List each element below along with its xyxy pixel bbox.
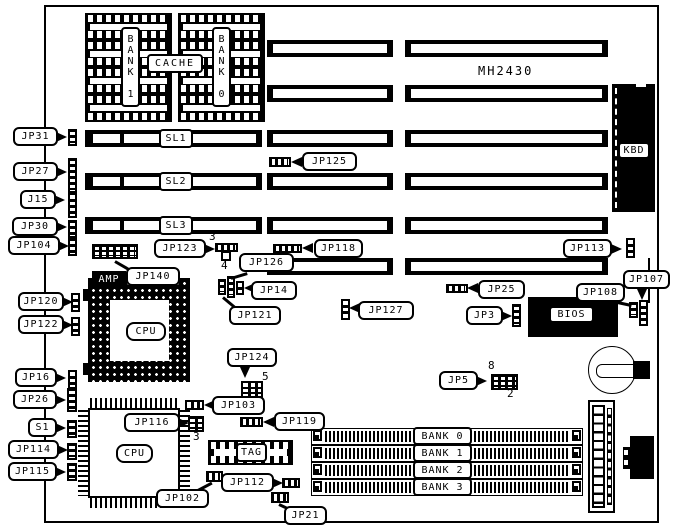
pin-number: 3 xyxy=(209,230,216,243)
cache-bank1-label: BANK 1 xyxy=(121,27,140,107)
jumper-jp103 xyxy=(185,400,204,410)
pointer-jp25 xyxy=(467,283,478,293)
board-model: MH2430 xyxy=(478,64,533,78)
pin-number: 8 xyxy=(488,359,495,372)
callout-jp108: JP108 xyxy=(576,283,625,302)
pointer-jp119 xyxy=(263,417,274,427)
pointer-jp125 xyxy=(291,157,302,167)
pointer-jp118 xyxy=(302,243,313,253)
callout-jp113: JP113 xyxy=(563,239,612,258)
isa-slot xyxy=(267,85,393,102)
jumper-jp140 xyxy=(92,244,138,259)
jumper-jp118 xyxy=(273,244,302,253)
din-port xyxy=(630,436,654,479)
isa-slot xyxy=(405,258,608,275)
callout-jp121: JP121 xyxy=(229,306,281,325)
callout-jp112: JP112 xyxy=(221,473,274,492)
isa-slot xyxy=(405,173,608,190)
jumper-jp30 xyxy=(68,220,77,238)
bios-label: BIOS xyxy=(549,306,594,323)
pointer-jp124 xyxy=(240,367,250,378)
jumper-jp114 xyxy=(67,443,77,460)
callout-jp114: JP114 xyxy=(8,440,59,459)
callout-jp104: JP104 xyxy=(8,236,60,255)
callout-jp120: JP120 xyxy=(18,292,64,311)
callout-jp127: JP127 xyxy=(358,301,414,320)
jumper-jp26 xyxy=(67,388,77,412)
pin-number: 3 xyxy=(193,430,200,443)
socket-tab xyxy=(83,363,88,375)
callout-jp30: JP30 xyxy=(12,217,58,236)
pin-number: 2 xyxy=(507,387,514,400)
pin-number: 4 xyxy=(221,259,228,272)
amp-label: AMP xyxy=(92,271,126,287)
jumper-jp5 xyxy=(491,374,518,390)
jumper-jp16 xyxy=(68,370,77,389)
jumper-jp14-strip xyxy=(236,281,244,295)
slot-label-sl3: SL3 xyxy=(159,216,193,235)
callout-jp102: JP102 xyxy=(156,489,209,508)
callout-jp31: JP31 xyxy=(13,127,58,146)
callout-jp5: JP5 xyxy=(439,371,478,390)
simm-bank0-label: BANK 0 xyxy=(413,427,472,445)
cache-label: CACHE xyxy=(147,54,203,73)
qfp-pins-left xyxy=(78,410,88,496)
callout-jp125: JP125 xyxy=(302,152,357,171)
cache-bank0-label: BANK 0 xyxy=(212,27,231,107)
isa-slot xyxy=(267,173,393,190)
simm-bank2-label: BANK 2 xyxy=(413,461,472,479)
callout-s1: S1 xyxy=(28,418,57,437)
callout-jp126: JP126 xyxy=(239,253,294,272)
isa-slot xyxy=(405,40,608,57)
callout-jp122: JP122 xyxy=(18,315,64,334)
callout-jp140: JP140 xyxy=(126,267,180,286)
callout-jp118: JP118 xyxy=(314,239,363,258)
callout-jp123: JP123 xyxy=(154,239,206,258)
callout-jp16: JP16 xyxy=(15,368,57,387)
jumper-s1 xyxy=(67,420,77,438)
jumper-jp115 xyxy=(67,463,77,481)
callout-jp115: JP115 xyxy=(8,462,57,481)
jumper-jp119 xyxy=(240,417,263,427)
jumper-jp112 xyxy=(282,478,300,488)
tag-label: TAG xyxy=(236,443,267,462)
isa-slot xyxy=(405,130,608,147)
cpu-socket-label: CPU xyxy=(126,322,166,341)
kbd-label: KBD xyxy=(618,142,650,159)
isa-slot xyxy=(267,40,393,57)
callout-jp26: JP26 xyxy=(13,390,57,409)
callout-jp21: JP21 xyxy=(284,506,327,525)
slot-label-sl1: SL1 xyxy=(159,129,193,148)
power-connector xyxy=(588,400,615,513)
jumper-jp27 xyxy=(68,158,77,193)
callout-jp3: JP3 xyxy=(466,306,503,325)
simm-bank1-label: BANK 1 xyxy=(413,444,472,462)
callout-j15: J15 xyxy=(20,190,56,209)
pointer-jp113 xyxy=(611,244,622,254)
callout-jp116: JP116 xyxy=(124,413,180,432)
jumper-jp25 xyxy=(446,284,468,293)
callout-jp107: JP107 xyxy=(623,270,670,289)
pointer-jp107 xyxy=(637,289,647,300)
isa-slot xyxy=(267,217,393,234)
din-port-tab xyxy=(623,447,632,469)
qfp-pins-top xyxy=(90,398,178,408)
cpu-chip-label: CPU xyxy=(116,444,153,463)
slot-label-sl2: SL2 xyxy=(159,172,193,191)
motherboard-diagram: BANK 1 BANK 0 CACHE SL1 SL2 SL3 MH2430 K… xyxy=(0,0,676,532)
jumper-j15 xyxy=(68,193,77,218)
jumper-jp31 xyxy=(68,129,77,146)
callout-jp119: JP119 xyxy=(274,412,325,431)
callout-jp14: JP14 xyxy=(251,281,297,300)
callout-jp25: JP25 xyxy=(478,280,525,299)
isa-slot xyxy=(405,85,608,102)
jumper-jp21 xyxy=(271,492,289,503)
isa-slot xyxy=(405,217,608,234)
simm-bank3-label: BANK 3 xyxy=(413,478,472,496)
jumper-jp107 xyxy=(639,300,648,326)
jumper-jp121-strip xyxy=(218,279,226,295)
callout-jp124: JP124 xyxy=(227,348,277,367)
jumper-jp113 xyxy=(626,238,635,258)
socket-tab xyxy=(83,289,88,301)
callout-jp27: JP27 xyxy=(13,162,58,181)
battery-clip-end xyxy=(633,361,650,379)
callout-jp103: JP103 xyxy=(212,396,265,415)
jumper-jp125 xyxy=(269,157,291,167)
jumper-jp104 xyxy=(68,238,77,256)
pin-number: 5 xyxy=(262,370,269,383)
isa-slot xyxy=(267,130,393,147)
jumper-jp3 xyxy=(512,304,521,327)
